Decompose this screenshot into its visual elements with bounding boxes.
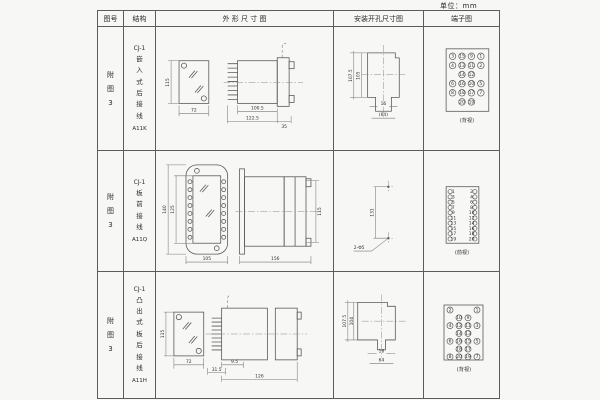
structure-code-row2: A11Q <box>132 237 147 243</box>
structure-cell-row3: CJ-1 凸出式板后接线 A11H <box>124 272 156 398</box>
svg-text:6: 6 <box>470 200 473 206</box>
svg-text:11: 11 <box>451 215 457 221</box>
dim-tab-width-row3: 16 <box>379 348 385 354</box>
svg-text:3: 3 <box>452 194 455 200</box>
fig-no-row2: 附图3 <box>106 190 116 232</box>
dim-side-length-row2: 156 <box>271 256 280 262</box>
svg-text:8: 8 <box>449 354 452 360</box>
svg-text:18: 18 <box>469 231 475 237</box>
front-view-row3 <box>164 312 204 369</box>
dim-cutout-inner-row1: 105 <box>356 71 362 80</box>
svg-text:10: 10 <box>456 315 462 321</box>
svg-text:14: 14 <box>459 72 465 78</box>
svg-text:13: 13 <box>451 221 457 227</box>
svg-text:18: 18 <box>456 346 462 352</box>
svg-text:9: 9 <box>470 54 473 60</box>
dim-front-outer-row2: 140 <box>162 205 168 214</box>
svg-text:1: 1 <box>476 307 479 313</box>
dim-cutout-inner-row3: 104 <box>349 317 355 326</box>
terminal-cell-row2: 1234567891011121314151617181920 (前视) <box>424 151 499 272</box>
svg-text:14: 14 <box>469 221 475 227</box>
svg-text:6: 6 <box>451 81 454 87</box>
svg-text:9: 9 <box>467 315 470 321</box>
svg-text:5: 5 <box>479 81 482 87</box>
header-outline: 外 形 尺 寸 图 <box>156 11 334 27</box>
svg-text:6: 6 <box>449 339 452 345</box>
svg-text:15: 15 <box>465 339 471 345</box>
svg-text:12: 12 <box>469 215 475 221</box>
structure-model-row3: CJ-1 <box>134 286 146 293</box>
svg-text:19: 19 <box>465 354 471 360</box>
outline-diagram-row1: 115 72 100.5 122.5 35 <box>156 27 333 150</box>
view-label-row1: (背视) <box>460 116 474 124</box>
svg-text:4: 4 <box>449 323 452 329</box>
side-view-row2 <box>236 169 321 264</box>
dim-front-width-row3: 72 <box>186 359 192 365</box>
fig-no-cell-row2: 附图3 <box>98 151 124 272</box>
header-structure: 结构 <box>124 11 156 27</box>
dim-total-length-row3: 126 <box>255 374 264 380</box>
svg-text:12: 12 <box>456 323 462 329</box>
svg-text:4: 4 <box>470 194 473 200</box>
dim-flange-row1: 35 <box>281 124 287 130</box>
header-terminal: 端子图 <box>424 11 499 27</box>
fig-no-cell-row1: 附图3 <box>98 27 124 151</box>
outline-cell-row3: 115 72 9.5 31.5 126 <box>156 272 334 398</box>
svg-text:10: 10 <box>469 210 475 216</box>
dim-pins-row3: 9.5 <box>231 359 238 365</box>
terminal-cell-row3: 2110941211314136161551817820197 (背视) <box>424 272 499 398</box>
dim-base-row3: 31.5 <box>212 367 222 373</box>
dim-tab-width-row1: 16 <box>381 101 387 107</box>
dim-hole-spacing-row2: 131 <box>370 208 376 217</box>
structure-code-row3: A11H <box>132 378 147 384</box>
svg-text:19: 19 <box>451 236 457 242</box>
svg-text:13: 13 <box>459 63 465 69</box>
fig-no-cell-row3: 附图3 <box>98 272 124 398</box>
structure-code-row1: A11K <box>132 126 146 132</box>
svg-text:10: 10 <box>469 81 475 87</box>
dim-front-width-row2: 105 <box>203 256 212 262</box>
svg-text:7: 7 <box>452 205 455 211</box>
front-view-row1 <box>168 61 209 117</box>
structure-model-row2: CJ-1 <box>134 179 146 186</box>
svg-text:8: 8 <box>451 90 454 96</box>
svg-text:5: 5 <box>476 339 479 345</box>
terminal-diagram-row1: 3159141311214126161058181772019 (背视) <box>424 27 499 150</box>
dim-front-inner-row2: 125 <box>170 205 176 214</box>
structure-desc-row1: 嵌入式后接线 <box>134 54 146 122</box>
terminal-circles-row2: 1234567891011121314151617181920 <box>448 189 477 242</box>
spec-table: 图号 结构 外 形 尺 寸 图 安装开孔尺寸图 端子图 附图3 CJ-1 嵌入式… <box>97 10 500 399</box>
dim-cutout-outer-row1: 107.5 <box>348 69 354 82</box>
outline-cell-row2: 140 125 105 156 115 <box>156 151 334 272</box>
svg-text:5: 5 <box>452 200 455 206</box>
terminal-circles-row1: 3159141311214126161058181772019 <box>449 53 484 105</box>
dim-cutout-outer-row3: 107.5 <box>342 315 348 328</box>
svg-text:4: 4 <box>451 63 454 69</box>
svg-text:17: 17 <box>465 346 471 352</box>
hole-callout-row2: 2-Φ5 <box>354 245 365 251</box>
svg-text:13: 13 <box>465 331 471 337</box>
mounting-cell-row1: 107.5 105 16 (64) <box>334 27 424 151</box>
dim-cutout-width-row1: (64) <box>379 112 388 118</box>
svg-text:7: 7 <box>479 90 482 96</box>
svg-text:20: 20 <box>469 236 475 242</box>
svg-text:12: 12 <box>469 72 475 78</box>
view-label-row3: (背视) <box>457 365 471 373</box>
dim-cutout-width-row3: 64 <box>379 358 385 364</box>
svg-text:17: 17 <box>451 231 457 237</box>
svg-text:2: 2 <box>449 307 452 313</box>
svg-text:18: 18 <box>459 90 465 96</box>
terminal-diagram-row2: 1234567891011121314151617181920 (前视) <box>424 151 499 271</box>
svg-text:15: 15 <box>459 54 465 60</box>
svg-text:1: 1 <box>452 189 455 195</box>
svg-text:9: 9 <box>452 210 455 216</box>
mounting-cell-row2: 131 2-Φ5 <box>334 151 424 272</box>
view-label-row2: (前视) <box>455 248 469 256</box>
svg-text:7: 7 <box>476 354 479 360</box>
svg-text:19: 19 <box>469 99 475 105</box>
dim-front-height-row1: 115 <box>165 78 171 87</box>
drill-holes-row2 <box>382 181 394 244</box>
svg-text:17: 17 <box>469 90 475 96</box>
terminal-diagram-row3: 2110941211314136161551817820197 (背视) <box>424 272 499 398</box>
svg-text:16: 16 <box>459 81 465 87</box>
dim-body-length-row1: 100.5 <box>251 105 264 111</box>
dim-side-height-row2: 115 <box>317 207 323 216</box>
header-mounting: 安装开孔尺寸图 <box>334 11 424 27</box>
svg-text:15: 15 <box>451 226 457 232</box>
svg-text:20: 20 <box>459 99 465 105</box>
svg-text:14: 14 <box>456 331 462 337</box>
svg-text:16: 16 <box>456 339 462 345</box>
structure-cell-row2: CJ-1 板前接线 A11Q <box>124 151 156 272</box>
svg-text:1: 1 <box>479 54 482 60</box>
svg-text:3: 3 <box>451 54 454 60</box>
outline-diagram-row3: 115 72 9.5 31.5 126 <box>156 272 333 398</box>
mounting-cell-row3: 107.5 104 16 64 <box>334 272 424 398</box>
terminal-circles-row3: 2110941211314136161551817820197 <box>447 307 480 360</box>
svg-text:16: 16 <box>469 226 475 232</box>
dim-front-width-row1: 72 <box>191 107 197 113</box>
structure-desc-row3: 凸出式板后接线 <box>134 295 146 375</box>
svg-text:2: 2 <box>470 189 473 195</box>
structure-desc-row2: 板前接线 <box>134 188 146 234</box>
svg-text:11: 11 <box>465 323 471 329</box>
outline-diagram-row2: 140 125 105 156 115 <box>156 151 333 271</box>
terminal-cell-row1: 3159141311214126161058181772019 (背视) <box>424 27 499 151</box>
svg-text:20: 20 <box>456 354 462 360</box>
dim-front-height-row3: 115 <box>160 330 166 339</box>
outline-cell-row1: 115 72 100.5 122.5 35 <box>156 27 334 151</box>
structure-model-row1: CJ-1 <box>134 45 146 52</box>
svg-text:2: 2 <box>479 63 482 69</box>
header-fig-no: 图号 <box>98 11 124 27</box>
dim-total-length-row1: 122.5 <box>246 116 259 122</box>
fig-no-row3: 附图3 <box>106 314 116 356</box>
svg-text:8: 8 <box>470 205 473 211</box>
svg-text:11: 11 <box>469 63 475 69</box>
mounting-diagram-row1: 107.5 105 16 (64) <box>334 27 423 150</box>
mounting-diagram-row2: 131 2-Φ5 <box>334 151 423 271</box>
structure-cell-row1: CJ-1 嵌入式后接线 A11K <box>124 27 156 151</box>
mounting-diagram-row3: 107.5 104 16 64 <box>334 272 423 398</box>
svg-text:3: 3 <box>476 323 479 329</box>
fig-no-row1: 附图3 <box>106 68 116 110</box>
